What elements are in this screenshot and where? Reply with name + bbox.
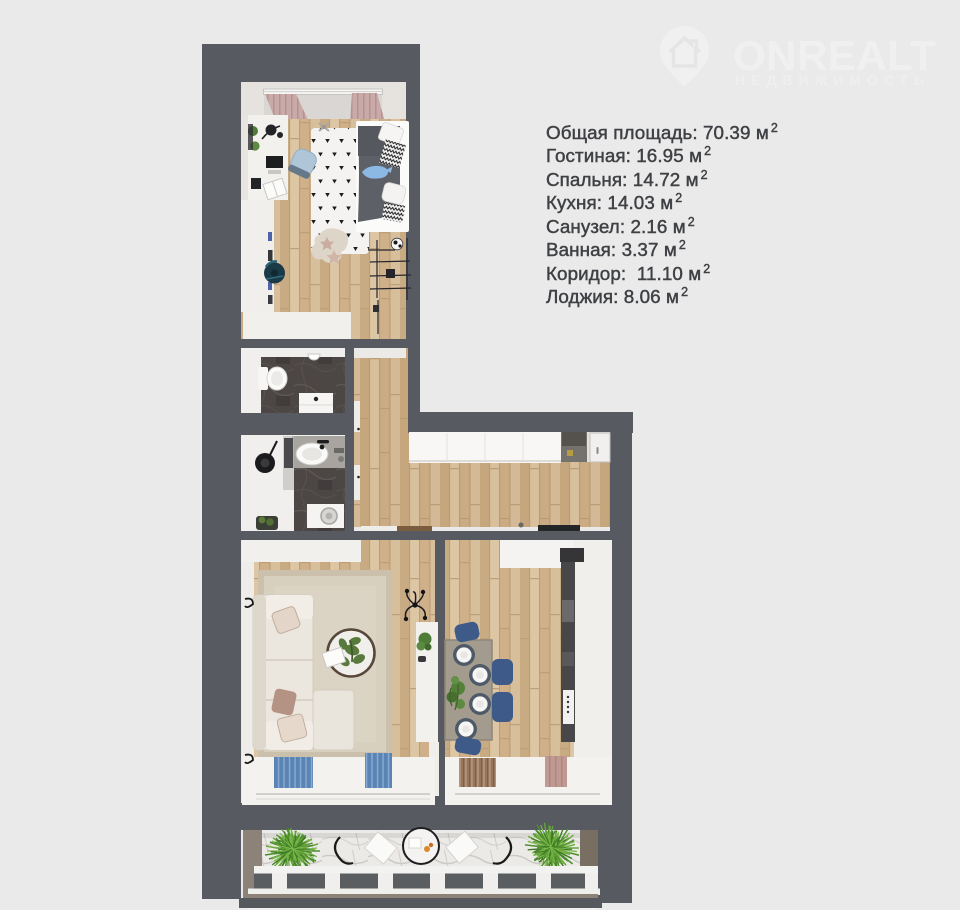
- svg-text:НЕДВИЖИМОСТЬ: НЕДВИЖИМОСТЬ: [735, 72, 930, 88]
